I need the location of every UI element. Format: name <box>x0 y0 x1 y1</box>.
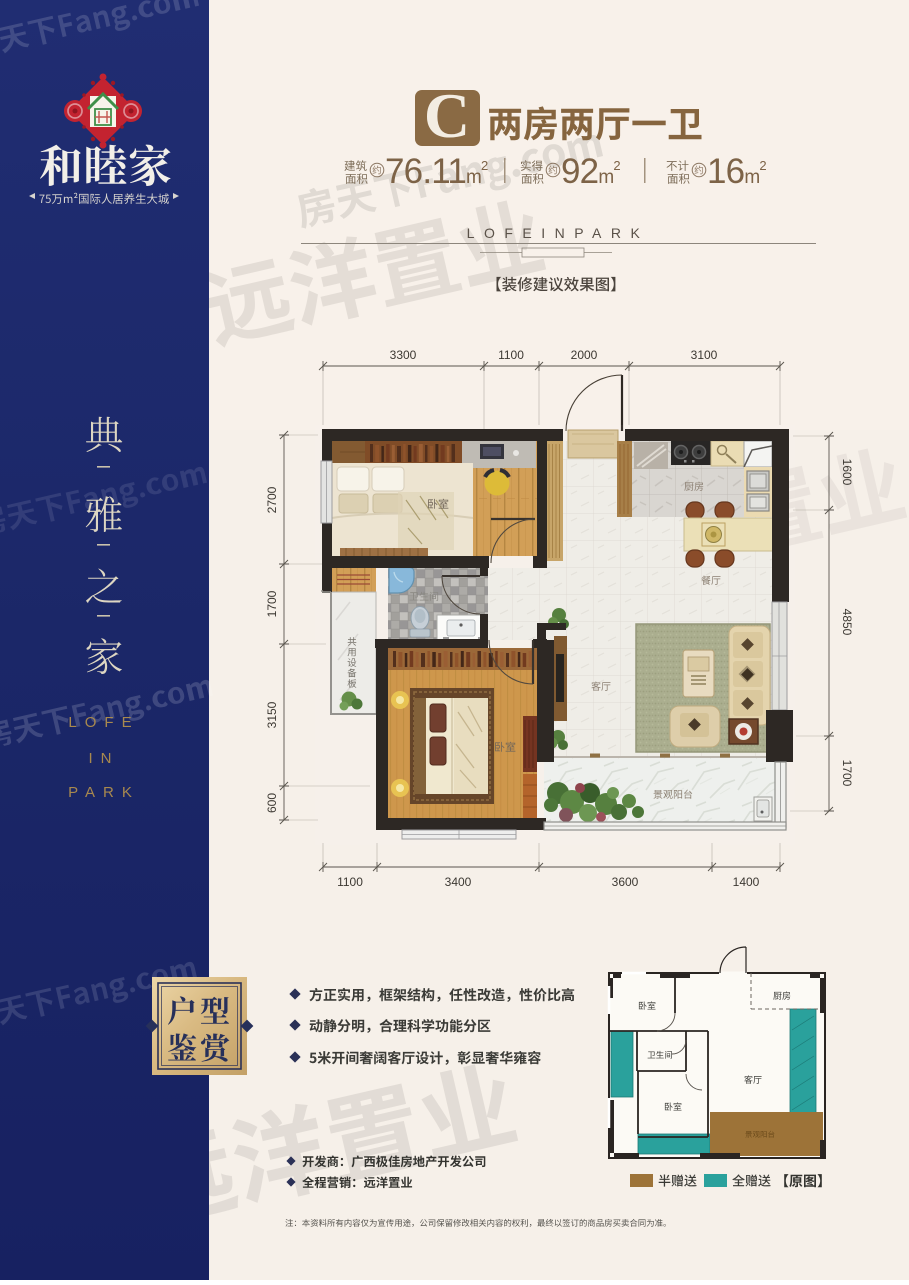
svg-text:2000: 2000 <box>571 348 598 362</box>
svg-text:IN: IN <box>89 750 120 767</box>
svg-text:4850: 4850 <box>840 609 854 636</box>
svg-text:3600: 3600 <box>612 875 639 889</box>
svg-text:LOFEINPARK: LOFEINPARK <box>467 225 650 241</box>
svg-text:600: 600 <box>265 793 279 813</box>
svg-text:1100: 1100 <box>337 875 363 889</box>
svg-text:1600: 1600 <box>840 459 854 486</box>
svg-text:C: C <box>424 80 470 151</box>
svg-text:3100: 3100 <box>691 348 718 362</box>
svg-text:1700: 1700 <box>265 590 279 617</box>
svg-text:1100: 1100 <box>498 348 524 362</box>
svg-text:2700: 2700 <box>265 486 279 513</box>
svg-text:1700: 1700 <box>840 760 854 787</box>
svg-text:3150: 3150 <box>265 701 279 728</box>
svg-text:1400: 1400 <box>733 875 760 889</box>
svg-text:3300: 3300 <box>390 348 417 362</box>
svg-text:LOFE: LOFE <box>68 714 139 731</box>
svg-text:3400: 3400 <box>445 875 472 889</box>
svg-text:PARK: PARK <box>68 784 140 801</box>
